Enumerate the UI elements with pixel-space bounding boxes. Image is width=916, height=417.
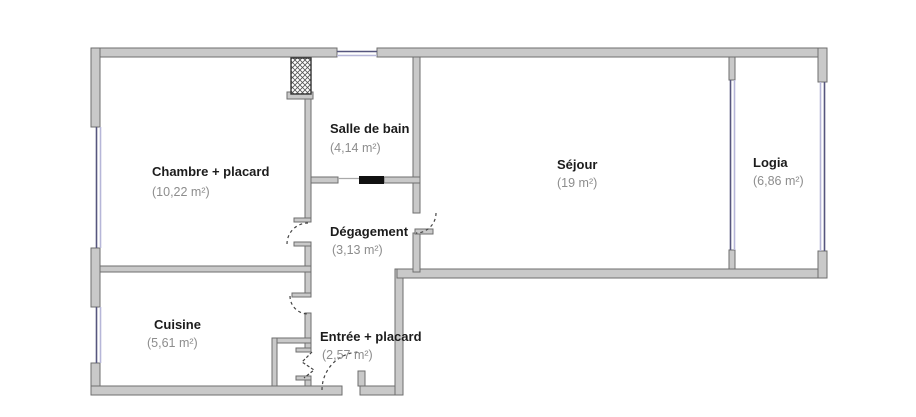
wall-segment [413, 233, 420, 272]
room-area-logia: (6,86 m²) [753, 174, 804, 188]
room-area-salle-de-bain: (4,14 m²) [330, 141, 381, 155]
room-area-cuisine: (5,61 m²) [147, 336, 198, 350]
room-area-sejour: (19 m²) [557, 176, 597, 190]
room-label-degagement: Dégagement [330, 224, 409, 239]
wall-segment [296, 348, 311, 352]
room-label-sejour: Séjour [557, 157, 597, 172]
wall-segment [415, 229, 433, 234]
walls [91, 48, 827, 395]
wall-segment [729, 250, 735, 269]
wall-segment [729, 57, 735, 80]
room-area-entree: (2,57 m²) [322, 348, 373, 362]
wall-segment [272, 338, 311, 343]
wall-segment [292, 293, 311, 297]
room-labels: Chambre + placard (10,22 m²) Salle de ba… [147, 121, 804, 362]
door-arc-chambre [287, 223, 308, 244]
wall-segment [91, 48, 100, 127]
sliding-door-salle-de-bain [359, 176, 384, 184]
room-label-logia: Logia [753, 155, 788, 170]
floor-plan-drawing: Chambre + placard (10,22 m²) Salle de ba… [0, 0, 916, 417]
wall-segment [413, 57, 420, 213]
wall-segment [100, 266, 311, 272]
room-label-cuisine: Cuisine [154, 317, 201, 332]
wall-segment [272, 338, 277, 386]
wall-segment [377, 48, 827, 57]
wall-segment [384, 177, 420, 183]
room-label-chambre: Chambre + placard [152, 164, 269, 179]
room-area-chambre: (10,22 m²) [152, 185, 210, 199]
wall-segment [818, 251, 827, 278]
room-label-salle-de-bain: Salle de bain [330, 121, 410, 136]
floor-plan: Chambre + placard (10,22 m²) Salle de ba… [0, 0, 916, 417]
wall-segment [294, 218, 311, 222]
windows [97, 52, 825, 364]
wall-segment [305, 95, 311, 222]
wall-segment [397, 269, 827, 278]
wall-segment [296, 376, 311, 380]
wall-segment [305, 313, 311, 352]
wall-segment [294, 242, 311, 246]
wall-segment [91, 386, 342, 395]
folding-door-placard [302, 352, 314, 378]
room-area-degagement: (3,13 m²) [332, 243, 383, 257]
room-label-entree: Entrée + placard [320, 329, 422, 344]
technical-shaft-icon [291, 58, 311, 94]
wall-segment [818, 48, 827, 82]
wall-segment [358, 371, 365, 386]
wall-segment [91, 248, 100, 307]
door-arc-cuisine [290, 296, 308, 314]
wall-segment [91, 48, 337, 57]
